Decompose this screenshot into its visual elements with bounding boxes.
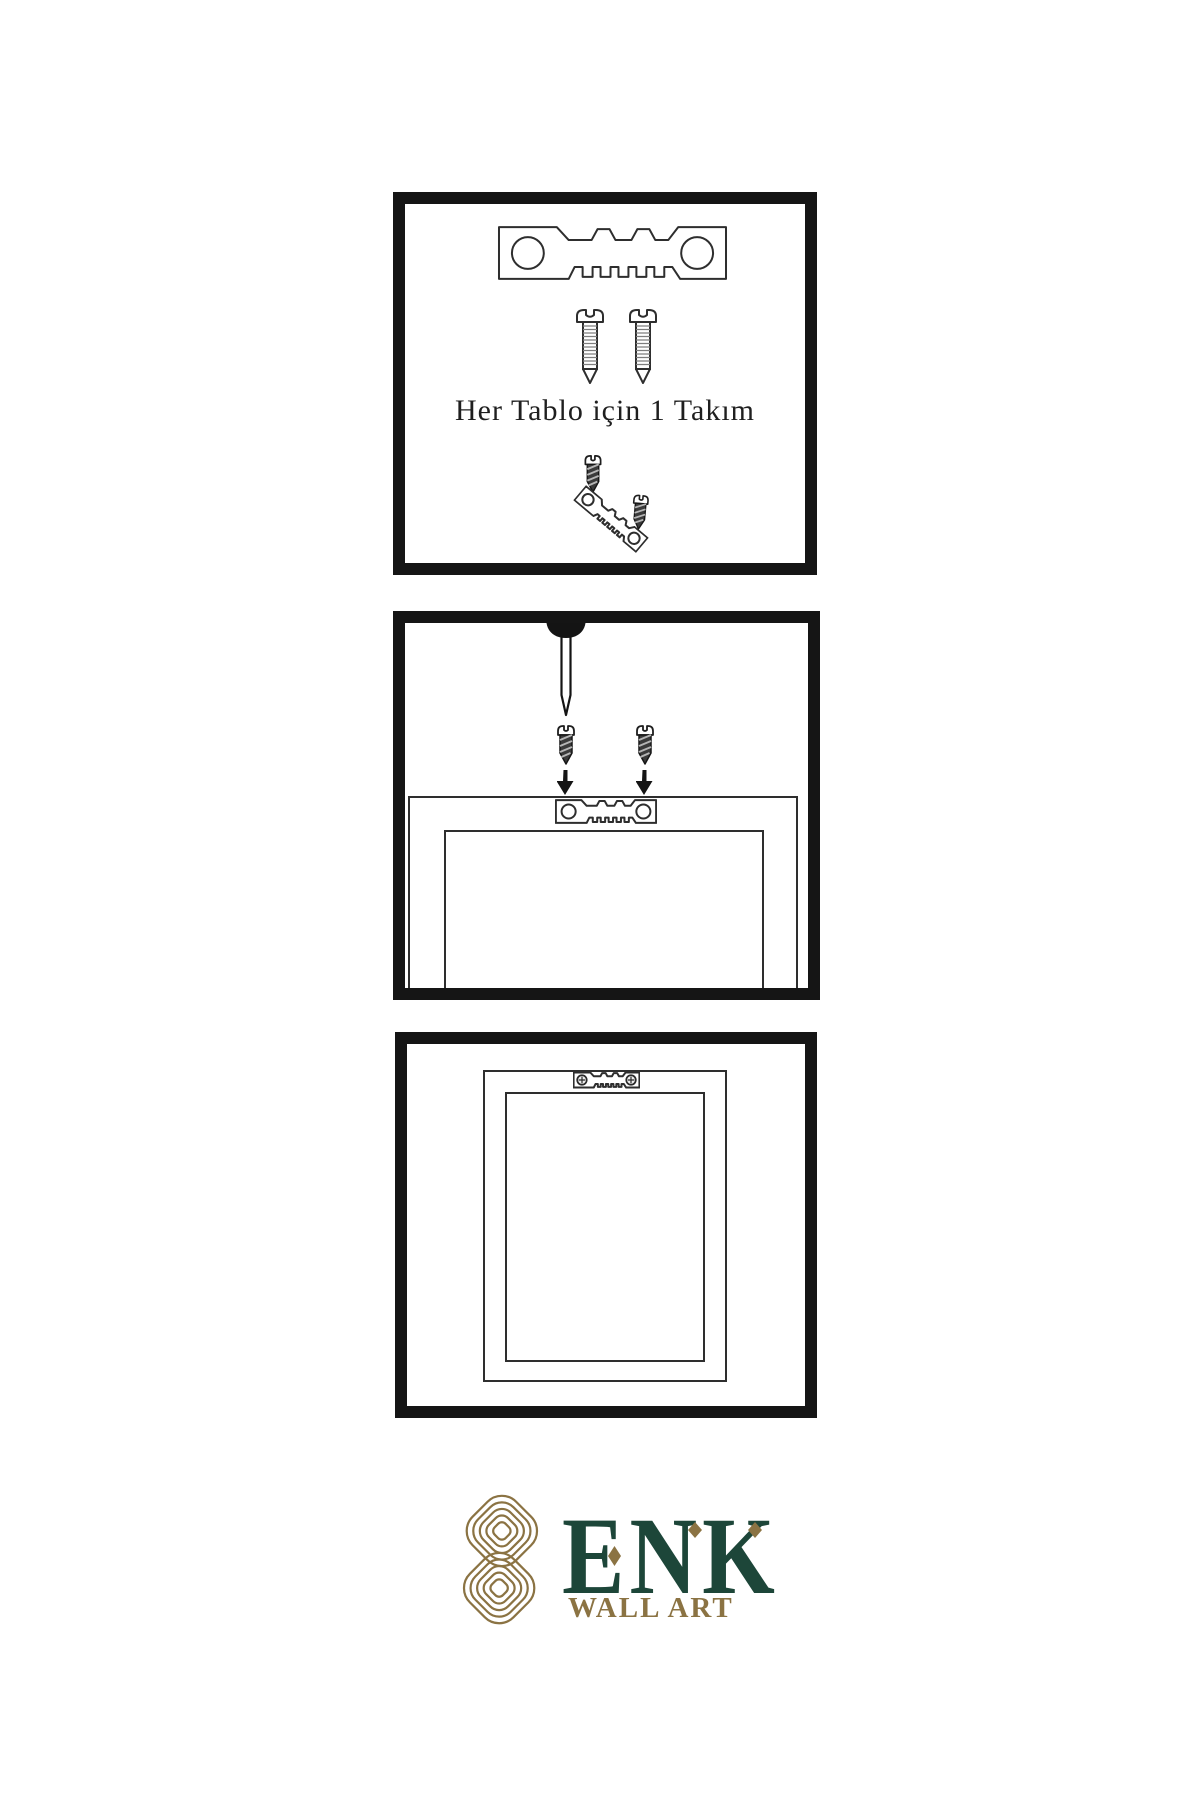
nail-icon — [546, 623, 586, 723]
panel-hung-frame-inner — [407, 1044, 805, 1406]
screw-icon — [626, 307, 660, 385]
mounted-sawtooth-hanger-icon — [573, 1070, 640, 1090]
screw-icon — [573, 307, 607, 385]
panel-attach-hanger — [393, 611, 820, 1000]
picture-frame-mat — [505, 1092, 705, 1362]
dark-screw-icon — [634, 723, 656, 765]
kit-caption: Her Tablo için 1 Takım — [405, 393, 805, 429]
panel-hung-frame — [395, 1032, 817, 1418]
brand-tagline: WALL ART — [568, 1593, 734, 1623]
dark-screw-icon — [555, 723, 577, 765]
panel-attach-hanger-inner — [405, 623, 808, 988]
frame-back-panel — [444, 830, 764, 988]
sawtooth-hanger-icon — [497, 225, 728, 281]
knot-logo-icon — [438, 1490, 563, 1630]
down-arrow-icon — [636, 770, 653, 795]
panel-hardware-kit-inner: Her Tablo için 1 Takım — [405, 204, 805, 563]
panel-hardware-kit: Her Tablo için 1 Takım — [393, 192, 817, 575]
sawtooth-hanger-icon — [555, 799, 657, 824]
instruction-sheet: Her Tablo için 1 Takım — [0, 0, 1200, 1800]
down-arrow-icon — [557, 770, 574, 795]
